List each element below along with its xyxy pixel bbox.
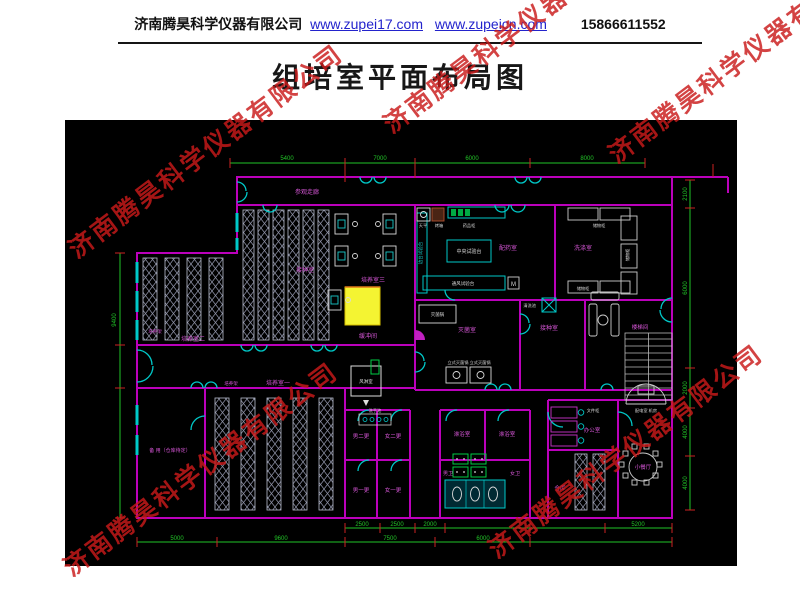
dim-right-4: 4000 <box>683 476 689 490</box>
room-label-transfer: 接种室 <box>540 324 558 332</box>
dim-bottomB-1: 9600 <box>274 536 288 542</box>
page-title: 组培室平面布局图 <box>0 56 800 96</box>
room-label-change-m1: 男一更 <box>353 487 370 494</box>
room-label-spare: 备 用（仓库待定） <box>149 447 190 454</box>
dim-top-1: 7000 <box>373 156 387 162</box>
company-name: 济南腾昊科学仪器有限公司 <box>134 16 302 32</box>
room-label-sterilize: 灭菌室 <box>458 326 476 334</box>
label-central-bench: 中央试验台 <box>456 248 481 255</box>
dim-top-2: 6000 <box>465 156 479 162</box>
label-cabinet-3: 储物柜 <box>577 285 590 292</box>
room-label-change-f1: 女一更 <box>385 486 402 494</box>
room-label-culture2: 培养室二 <box>181 335 205 343</box>
link-zupeicn[interactable]: www.zupeicn.com <box>435 16 547 32</box>
header-divider <box>118 42 702 44</box>
room-label-stairs: 楼梯间 <box>632 323 649 331</box>
dim-top-0: 5400 <box>280 156 294 162</box>
dim-left: 9400 <box>112 313 118 327</box>
room-label-wash: 洗涤室 <box>574 244 592 252</box>
dim-bottomA-3: 5200 <box>631 522 645 528</box>
label-side-bench: 边台试验台 <box>417 241 424 264</box>
dim-top-3: 8000 <box>580 156 594 162</box>
plan-background <box>65 120 737 566</box>
room-label-bench-room: 接种室 <box>296 266 314 274</box>
dim-bottomB-3: 6000 <box>476 536 490 542</box>
floor-plan: 5400 7000 6000 8000 2100 6000 2000 4000 … <box>65 120 737 566</box>
label-power-room: 配电室 机房 <box>635 407 657 414</box>
label-m-box: M <box>511 282 516 288</box>
dim-bottomB-2: 7500 <box>383 536 397 542</box>
dim-right-0: 2100 <box>683 187 689 201</box>
dim-bottomA-2: 2000 <box>423 522 437 528</box>
room-label-dining: 小餐厅 <box>635 463 652 471</box>
highlighted-clean-bench <box>345 287 380 325</box>
room-label-storage: 仓库 <box>554 484 566 492</box>
rack-label-b: 培养架 <box>224 380 238 387</box>
dim-bottomA-0: 2500 <box>355 522 369 528</box>
room-label-toilet-m: 男卫 <box>443 471 453 477</box>
label-vert-sterilizer: 立式灭菌锅 立式灭菌锅 <box>447 359 490 366</box>
page: 济南腾昊科学仪器有限公司 www.zupei17.com www.zupeicn… <box>0 0 800 600</box>
label-air-shower: 风淋室 <box>359 378 373 385</box>
room-label-shower1: 淋浴室 <box>454 430 471 438</box>
room-label-prep: 配药室 <box>499 244 517 252</box>
room-label-toilet-f: 女卫 <box>510 470 520 477</box>
room-label-office: 办公室 <box>584 426 601 434</box>
room-label-culture3: 培养室三 <box>361 276 385 284</box>
room-label-change-f2: 女二更 <box>385 432 402 440</box>
label-oven: 烤箱 <box>435 222 443 229</box>
link-zupei17[interactable]: www.zupei17.com <box>310 16 423 32</box>
label-file-cabinet: 文件柜 <box>587 407 600 414</box>
label-cabinet-1: 储物柜 <box>593 222 606 229</box>
dim-right-3: 4000 <box>683 425 689 439</box>
room-label-buffer: 缓冲间 <box>359 332 377 340</box>
label-med-cabinet: 药品柜 <box>463 222 476 229</box>
label-sink: 清洗池 <box>523 302 536 309</box>
dim-right-2: 2000 <box>683 381 689 395</box>
dim-bottomB-0: 5000 <box>170 536 184 542</box>
label-sterilizer-pot: 灭菌锅 <box>431 311 445 318</box>
dim-right-1: 6000 <box>683 281 689 295</box>
room-label-corridor: 参观走廊 <box>295 188 319 196</box>
dim-bottomA-1: 2500 <box>390 522 404 528</box>
room-label-culture1: 培养室一 <box>266 379 290 387</box>
label-fume-bench: 通风试验台 <box>452 280 475 287</box>
room-label-change-m2: 男二更 <box>353 433 370 440</box>
label-cabinet-2: 储物柜 <box>624 249 631 262</box>
rack-label-a: 培养架 <box>148 328 162 335</box>
room-label-shower2: 淋浴室 <box>499 430 516 438</box>
header: 济南腾昊科学仪器有限公司 www.zupei17.com www.zupeicn… <box>0 14 800 34</box>
phone-number: 15866611552 <box>581 16 666 32</box>
label-handwash: 洗手池 <box>369 407 382 414</box>
